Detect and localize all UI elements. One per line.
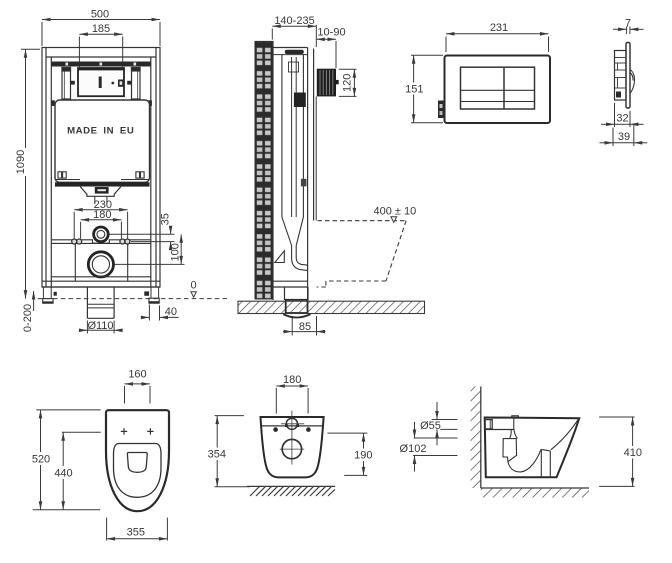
svg-text:1090: 1090 bbox=[15, 150, 27, 174]
svg-text:120: 120 bbox=[342, 74, 354, 92]
svg-text:40: 40 bbox=[165, 306, 177, 318]
svg-text:39: 39 bbox=[618, 131, 630, 143]
svg-text:35: 35 bbox=[159, 213, 171, 225]
svg-text:500: 500 bbox=[91, 8, 109, 20]
svg-text:Ø110: Ø110 bbox=[87, 320, 113, 332]
svg-text:7: 7 bbox=[625, 18, 631, 30]
svg-text:231: 231 bbox=[490, 22, 508, 34]
svg-text:190: 190 bbox=[354, 449, 372, 461]
svg-text:520: 520 bbox=[32, 453, 50, 465]
svg-text:160: 160 bbox=[128, 369, 146, 381]
svg-text:Ø102: Ø102 bbox=[400, 443, 427, 455]
svg-text:32: 32 bbox=[616, 113, 628, 125]
svg-text:440: 440 bbox=[54, 467, 72, 479]
svg-text:0-200: 0-200 bbox=[22, 304, 34, 332]
svg-text:180: 180 bbox=[93, 209, 111, 221]
svg-text:354: 354 bbox=[208, 448, 226, 460]
svg-text:100: 100 bbox=[169, 243, 181, 261]
svg-text:410: 410 bbox=[624, 447, 642, 459]
svg-text:180: 180 bbox=[283, 374, 301, 386]
svg-text:Ø55: Ø55 bbox=[420, 420, 441, 432]
svg-text:400 ± 10: 400 ± 10 bbox=[374, 206, 417, 218]
svg-text:355: 355 bbox=[127, 526, 145, 538]
svg-text:140-235: 140-235 bbox=[274, 15, 314, 27]
svg-text:85: 85 bbox=[299, 321, 311, 333]
svg-text:0: 0 bbox=[191, 280, 197, 292]
svg-text:10-90: 10-90 bbox=[317, 27, 345, 39]
svg-text:MADE IN EU: MADE IN EU bbox=[67, 126, 134, 137]
svg-text:151: 151 bbox=[405, 83, 423, 95]
svg-text:185: 185 bbox=[92, 23, 110, 35]
